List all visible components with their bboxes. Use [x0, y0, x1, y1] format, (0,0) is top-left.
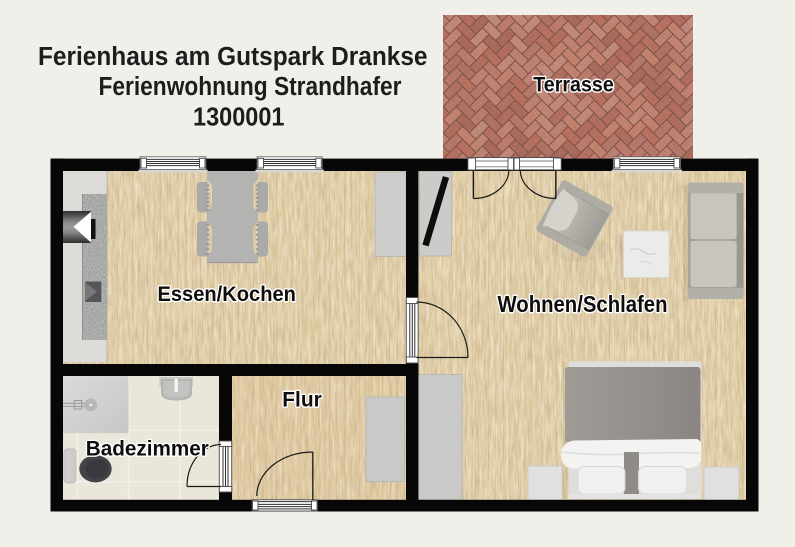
svg-text:Badezimmer: Badezimmer [86, 437, 210, 461]
svg-text:Terrasse: Terrasse [533, 72, 614, 96]
svg-text:Ferienhaus am Gutspark Drankse: Ferienhaus am Gutspark Drankse [38, 43, 428, 71]
svg-text:1300001: 1300001 [193, 104, 285, 132]
svg-text:Ferienwohnung Strandhafer: Ferienwohnung Strandhafer [99, 73, 402, 101]
svg-text:Wohnen/Schlafen: Wohnen/Schlafen [498, 291, 668, 317]
svg-text:Essen/Kochen: Essen/Kochen [157, 282, 296, 306]
svg-text:Flur: Flur [282, 387, 322, 411]
